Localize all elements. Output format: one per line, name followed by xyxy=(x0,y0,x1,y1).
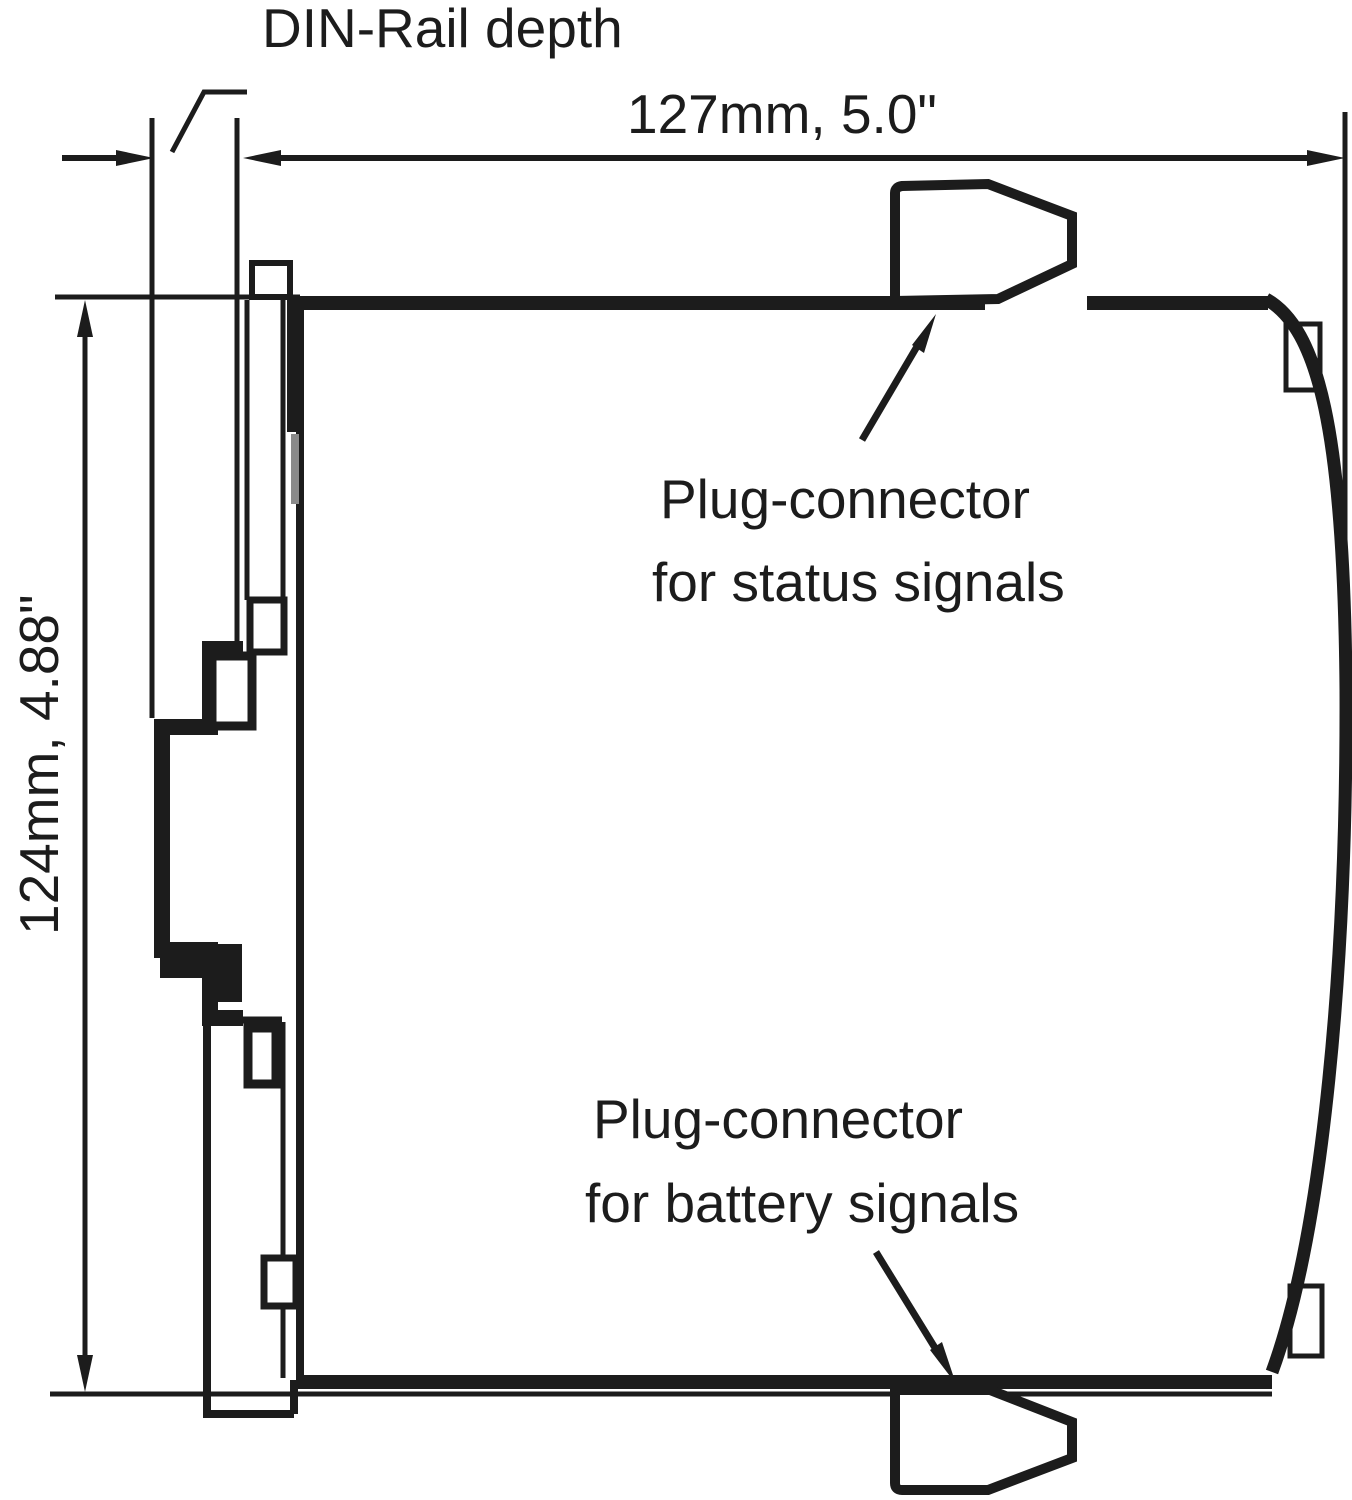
battery-connector-label-line2: for battery signals xyxy=(585,1172,1019,1234)
housing-foot-tab xyxy=(264,1258,296,1306)
status-connector-arrow-line xyxy=(862,338,922,440)
status-connector-label-line1: Plug-connector xyxy=(660,468,1030,530)
body-front-curve xyxy=(1266,299,1346,1372)
rear-latch-bar xyxy=(287,297,302,432)
height-dimension-label: 124mm, 4.88" xyxy=(8,594,70,935)
din-rail-depth-arrow-icon xyxy=(116,150,154,166)
rear-top-tab xyxy=(252,263,290,297)
status-connector-label-line2: for status signals xyxy=(652,551,1065,613)
top-plug-connector xyxy=(895,184,1072,301)
rail-foot-step-inner xyxy=(204,944,242,1002)
height-arrow-top-icon xyxy=(77,300,93,337)
width-arrow-left-icon xyxy=(243,150,281,166)
dimension-height xyxy=(77,300,93,1392)
clip-housing-detail xyxy=(250,600,284,652)
dimension-width xyxy=(243,150,1345,166)
bottom-plug-connector xyxy=(895,1390,1072,1490)
height-arrow-bottom-icon xyxy=(77,1355,93,1392)
battery-connector-label-line1: Plug-connector xyxy=(593,1088,963,1150)
din-rail-clip xyxy=(160,600,296,1414)
clip-claw-bottom xyxy=(248,1028,276,1084)
dimension-drawing: DIN-Rail depth 127mm, 5.0" 124mm, 4.88" … xyxy=(0,0,1352,1500)
connectors xyxy=(895,184,1072,1490)
width-arrow-right-icon xyxy=(1307,150,1345,166)
din-rail-depth-label: DIN-Rail depth xyxy=(262,0,623,59)
battery-connector-arrow-line xyxy=(876,1252,940,1356)
rear-latch-spring xyxy=(291,434,299,504)
status-connector-arrow-icon xyxy=(912,314,936,353)
clip-claw-top xyxy=(212,656,252,726)
width-dimension-label: 127mm, 5.0" xyxy=(627,83,937,145)
